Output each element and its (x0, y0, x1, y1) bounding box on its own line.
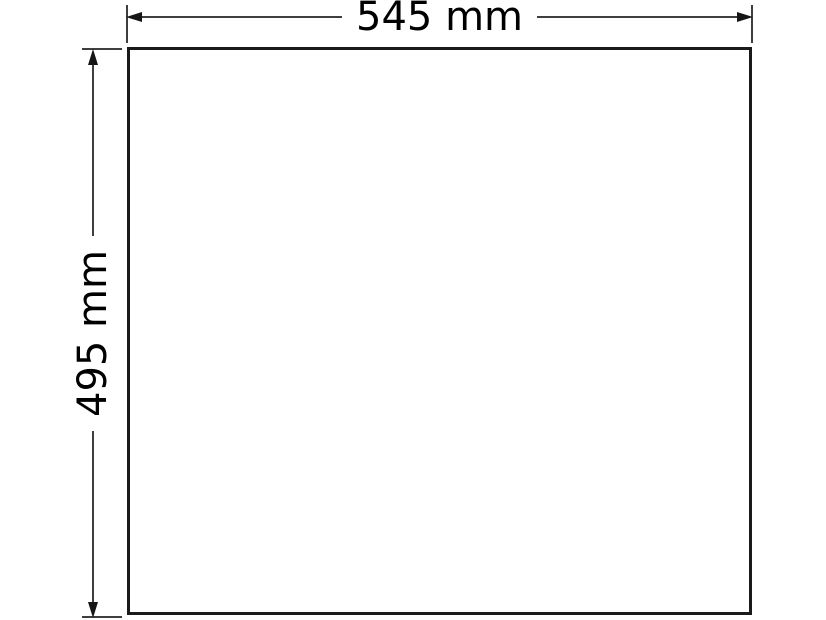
panel-outline (127, 47, 752, 615)
arrowhead-right-icon (737, 12, 753, 22)
arrowhead-left-icon (126, 12, 142, 22)
height-dimension-line-upper (92, 65, 94, 236)
height-dimension: 495 mm (76, 49, 109, 618)
arrowhead-up-icon (88, 49, 98, 65)
width-dimension-line-left (142, 16, 342, 18)
height-dimension-label: 495 mm (73, 250, 113, 417)
width-dimension-line-right (537, 16, 737, 18)
dimension-diagram: 545 mm 495 mm (0, 0, 826, 620)
arrowhead-down-icon (88, 602, 98, 618)
height-dimension-line-lower (92, 431, 94, 602)
width-dimension-label: 545 mm (356, 0, 523, 37)
width-dimension: 545 mm (126, 0, 753, 34)
